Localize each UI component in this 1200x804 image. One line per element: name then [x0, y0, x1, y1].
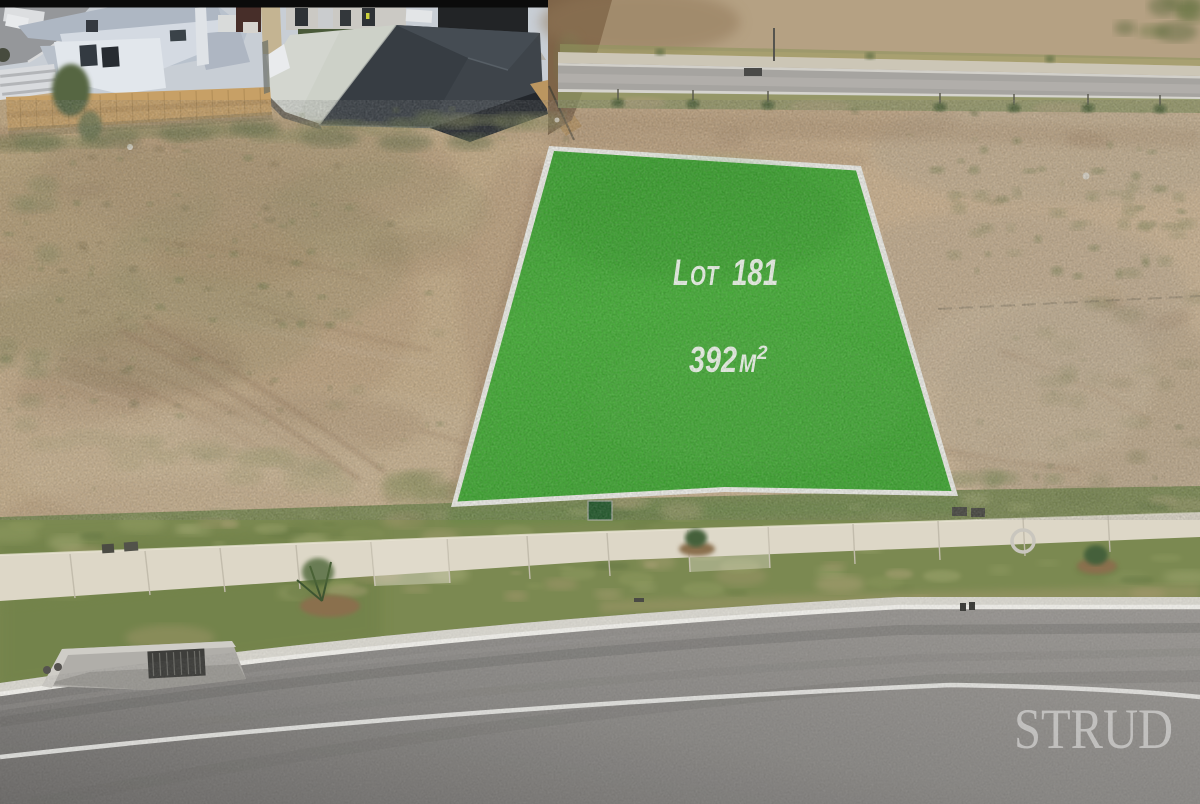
svg-text:STRUD: STRUD — [1014, 698, 1173, 761]
